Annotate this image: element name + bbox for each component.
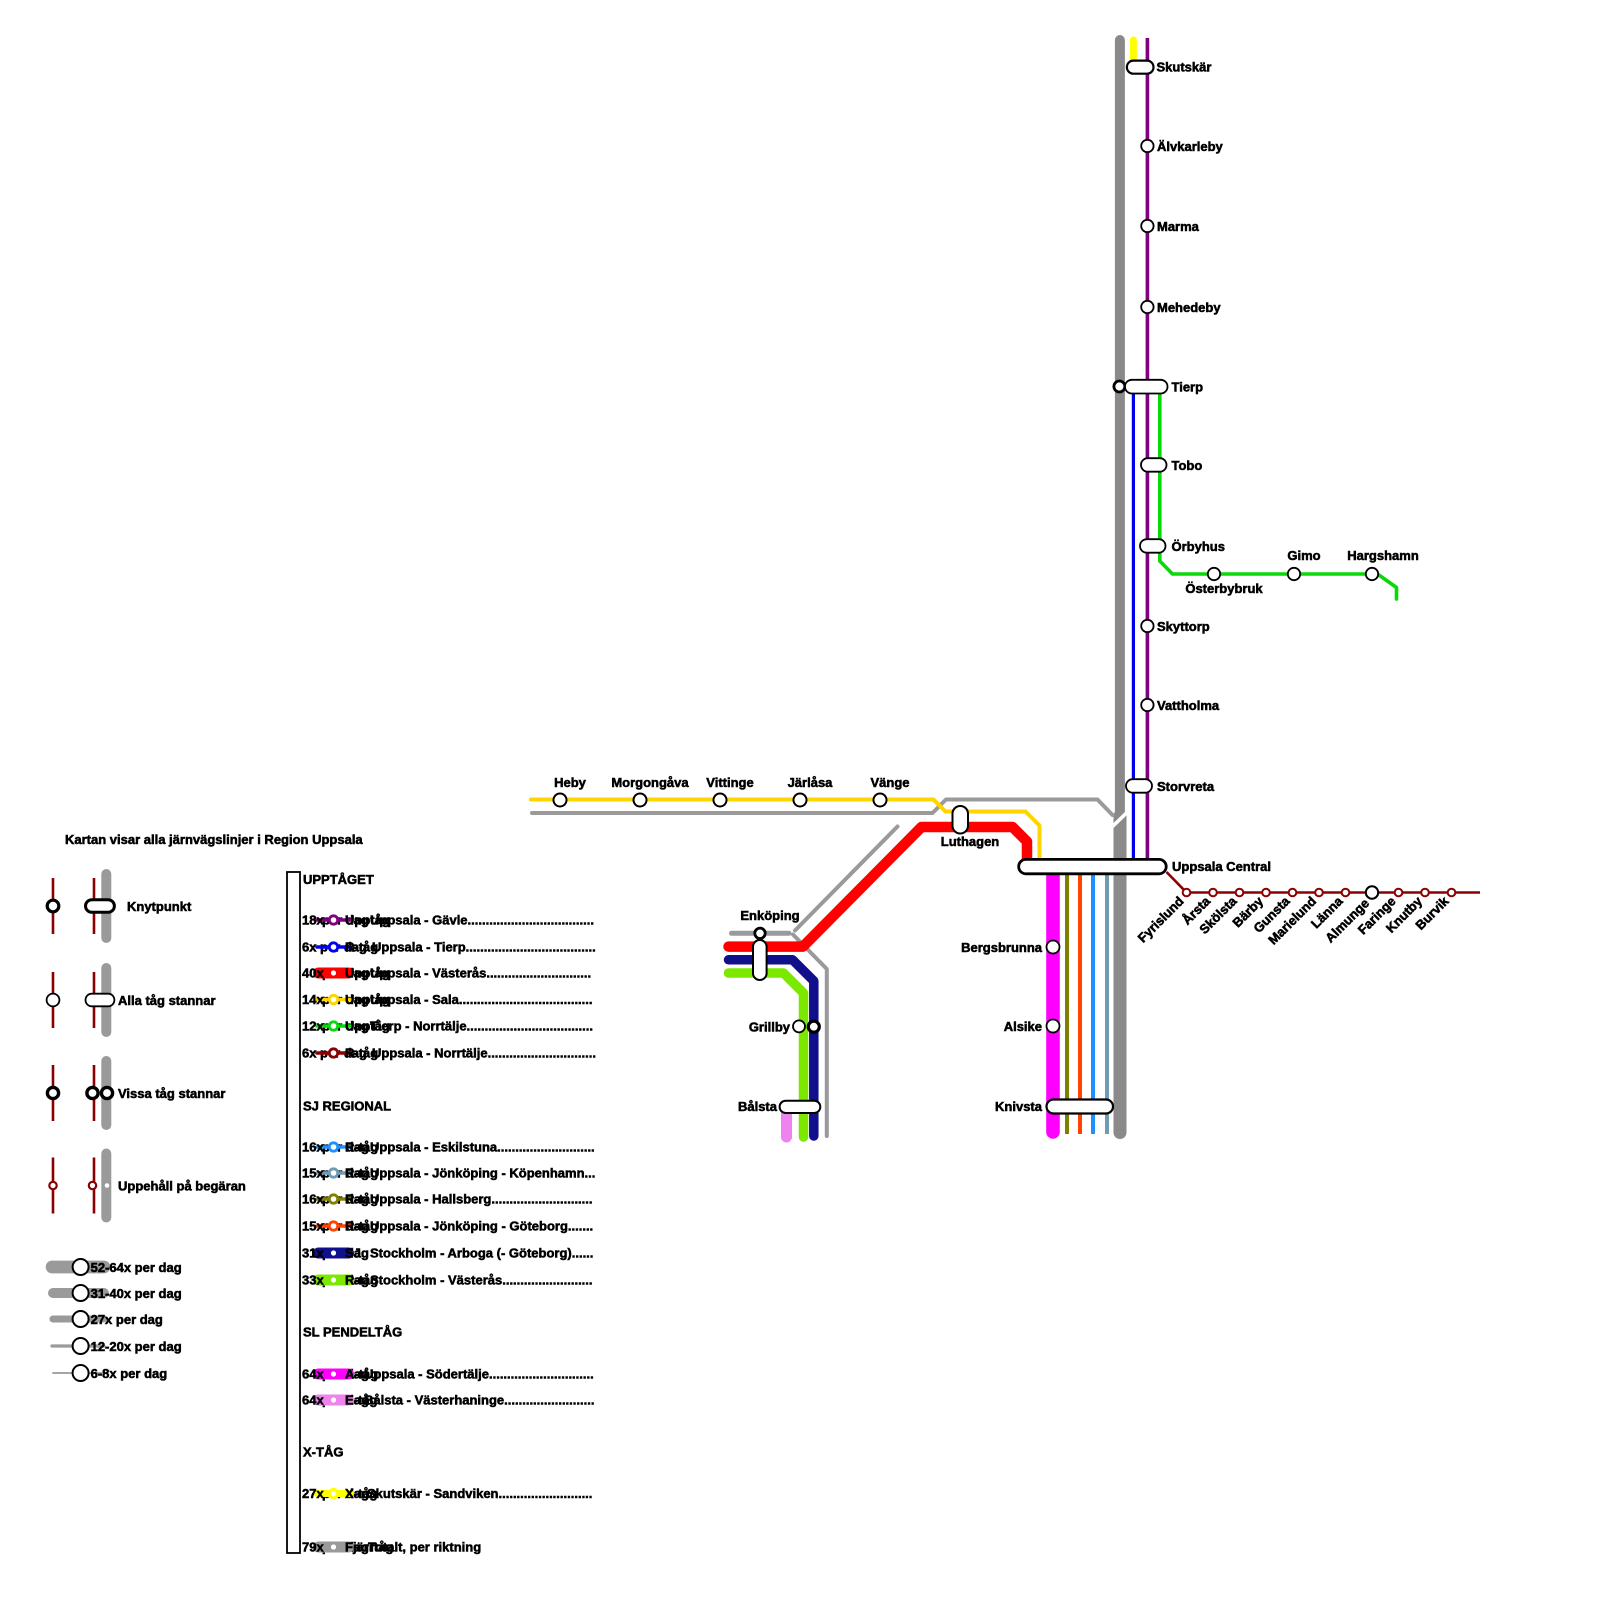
svg-text:52-64x per dag: 52-64x per dag [91, 1260, 182, 1275]
svg-text:64x: 64x [302, 1367, 324, 1382]
svg-text:UPPTÅGET: UPPTÅGET [303, 872, 374, 887]
svg-text:Grillby: Grillby [749, 1020, 791, 1035]
svg-text:Österbybruk: Österbybruk [1185, 581, 1263, 596]
svg-text:SJ: SJ [345, 1246, 361, 1261]
svg-text:6x: 6x [302, 940, 317, 955]
svg-text:Morgongåva: Morgongåva [611, 775, 689, 790]
svg-text:Hargshamn: Hargshamn [1347, 548, 1419, 563]
svg-text:Vänge: Vänge [870, 775, 909, 790]
svg-text:64x: 64x [302, 1393, 324, 1408]
svg-text:79x: 79x [302, 1540, 324, 1555]
svg-text:14x: 14x [302, 992, 324, 1007]
svg-text:31x: 31x [302, 1246, 324, 1261]
svg-text:Mehedeby: Mehedeby [1157, 300, 1221, 315]
svg-text:Bergsbrunna: Bergsbrunna [961, 940, 1043, 955]
svg-text:Tierp - Norrtälje.............: Tierp - Norrtälje.......................… [370, 1019, 593, 1034]
svg-text:Älvkarleby: Älvkarleby [1157, 139, 1224, 154]
svg-text:Uppsala - Norrtälje...........: Uppsala - Norrtälje.....................… [372, 1046, 596, 1061]
svg-text:Stockholm - Västerås..........: Stockholm - Västerås....................… [370, 1273, 593, 1288]
svg-text:33x: 33x [302, 1273, 324, 1288]
svg-text:18x: 18x [302, 913, 324, 928]
svg-text:Knivsta: Knivsta [995, 1099, 1043, 1114]
svg-text:Uppsala - Tierp...............: Uppsala - Tierp.........................… [372, 940, 596, 955]
svg-text:Uppsala Central: Uppsala Central [1172, 859, 1271, 874]
svg-text:12-20x per dag: 12-20x per dag [91, 1339, 182, 1354]
svg-text:27x per dag: 27x per dag [91, 1312, 163, 1327]
svg-text:Uppsala - Jönköping - Göteborg: Uppsala - Jönköping - Göteborg....... [370, 1219, 593, 1234]
svg-text:Stockholm - Arboga (- Göteborg: Stockholm - Arboga (- Göteborg)...... [370, 1246, 593, 1261]
svg-text:Enköping: Enköping [740, 908, 799, 923]
svg-text:Skutskär: Skutskär [1157, 60, 1212, 75]
svg-text:Alsike: Alsike [1004, 1019, 1042, 1034]
svg-text:Järlåsa: Järlåsa [788, 775, 834, 790]
svg-text:15x: 15x [302, 1219, 324, 1234]
svg-text:Gimo: Gimo [1287, 548, 1320, 563]
svg-text:Vittinge: Vittinge [706, 775, 753, 790]
svg-text:Luthagen: Luthagen [941, 834, 1000, 849]
svg-text:16x: 16x [302, 1192, 324, 1207]
svg-text:27x: 27x [302, 1486, 324, 1501]
svg-text:Uppsala - Jönköping - Köpenham: Uppsala - Jönköping - Köpenhamn... [370, 1166, 595, 1181]
svg-text:Bålsta - Västerhaninge........: Bålsta - Västerhaninge..................… [364, 1393, 594, 1408]
svg-text:12x: 12x [302, 1019, 324, 1034]
svg-text:Uppsala - Eskilstuna..........: Uppsala - Eskilstuna....................… [370, 1140, 595, 1155]
svg-text:31-40x per dag: 31-40x per dag [91, 1286, 182, 1301]
svg-text:40x: 40x [302, 966, 324, 981]
svg-text:6x: 6x [302, 1046, 317, 1061]
svg-text:SJ REGIONAL: SJ REGIONAL [303, 1099, 391, 1114]
svg-text:15x: 15x [302, 1166, 324, 1181]
svg-text:Uppsala - Hallsberg...........: Uppsala - Hallsberg.....................… [370, 1192, 593, 1207]
svg-text:Kartan visar alla järnvägslinj: Kartan visar alla järnvägslinjer i Regio… [65, 832, 363, 847]
svg-text:SL PENDELTÅG: SL PENDELTÅG [303, 1325, 402, 1340]
svg-text:Tobo: Tobo [1172, 458, 1203, 473]
svg-text:Totalt, per riktning: Totalt, per riktning [368, 1540, 481, 1555]
svg-text:Knytpunkt: Knytpunkt [127, 899, 192, 914]
svg-text:Tierp: Tierp [1172, 380, 1204, 395]
svg-text:Uppsala - Södertälje..........: Uppsala - Södertälje....................… [364, 1367, 594, 1382]
svg-text:Uppsala - Västerås............: Uppsala - Västerås......................… [370, 966, 591, 981]
svg-text:Uppsala - Gävle...............: Uppsala - Gävle.........................… [370, 913, 594, 928]
svg-text:Storvreta: Storvreta [1157, 779, 1215, 794]
svg-text:X-TÅG: X-TÅG [303, 1445, 343, 1460]
svg-text:6-8x per dag: 6-8x per dag [91, 1366, 168, 1381]
svg-text:16x: 16x [302, 1140, 324, 1155]
svg-text:Skutskär - Sandviken..........: Skutskär - Sandviken....................… [367, 1486, 592, 1501]
svg-text:Alla tåg stannar: Alla tåg stannar [118, 993, 216, 1008]
svg-text:Skyttorp: Skyttorp [1157, 619, 1210, 634]
svg-text:Marma: Marma [1157, 219, 1200, 234]
svg-text:Uppehåll på begäran: Uppehåll på begäran [118, 1179, 246, 1194]
svg-text:Bålsta: Bålsta [738, 1099, 778, 1114]
svg-text:Örbyhus: Örbyhus [1172, 539, 1225, 554]
svg-text:Vissa tåg stannar: Vissa tåg stannar [118, 1086, 225, 1101]
svg-text:Vattholma: Vattholma [1157, 698, 1220, 713]
svg-text:Uppsala - Sala................: Uppsala - Sala..........................… [370, 992, 593, 1007]
svg-text:Heby: Heby [554, 775, 587, 790]
